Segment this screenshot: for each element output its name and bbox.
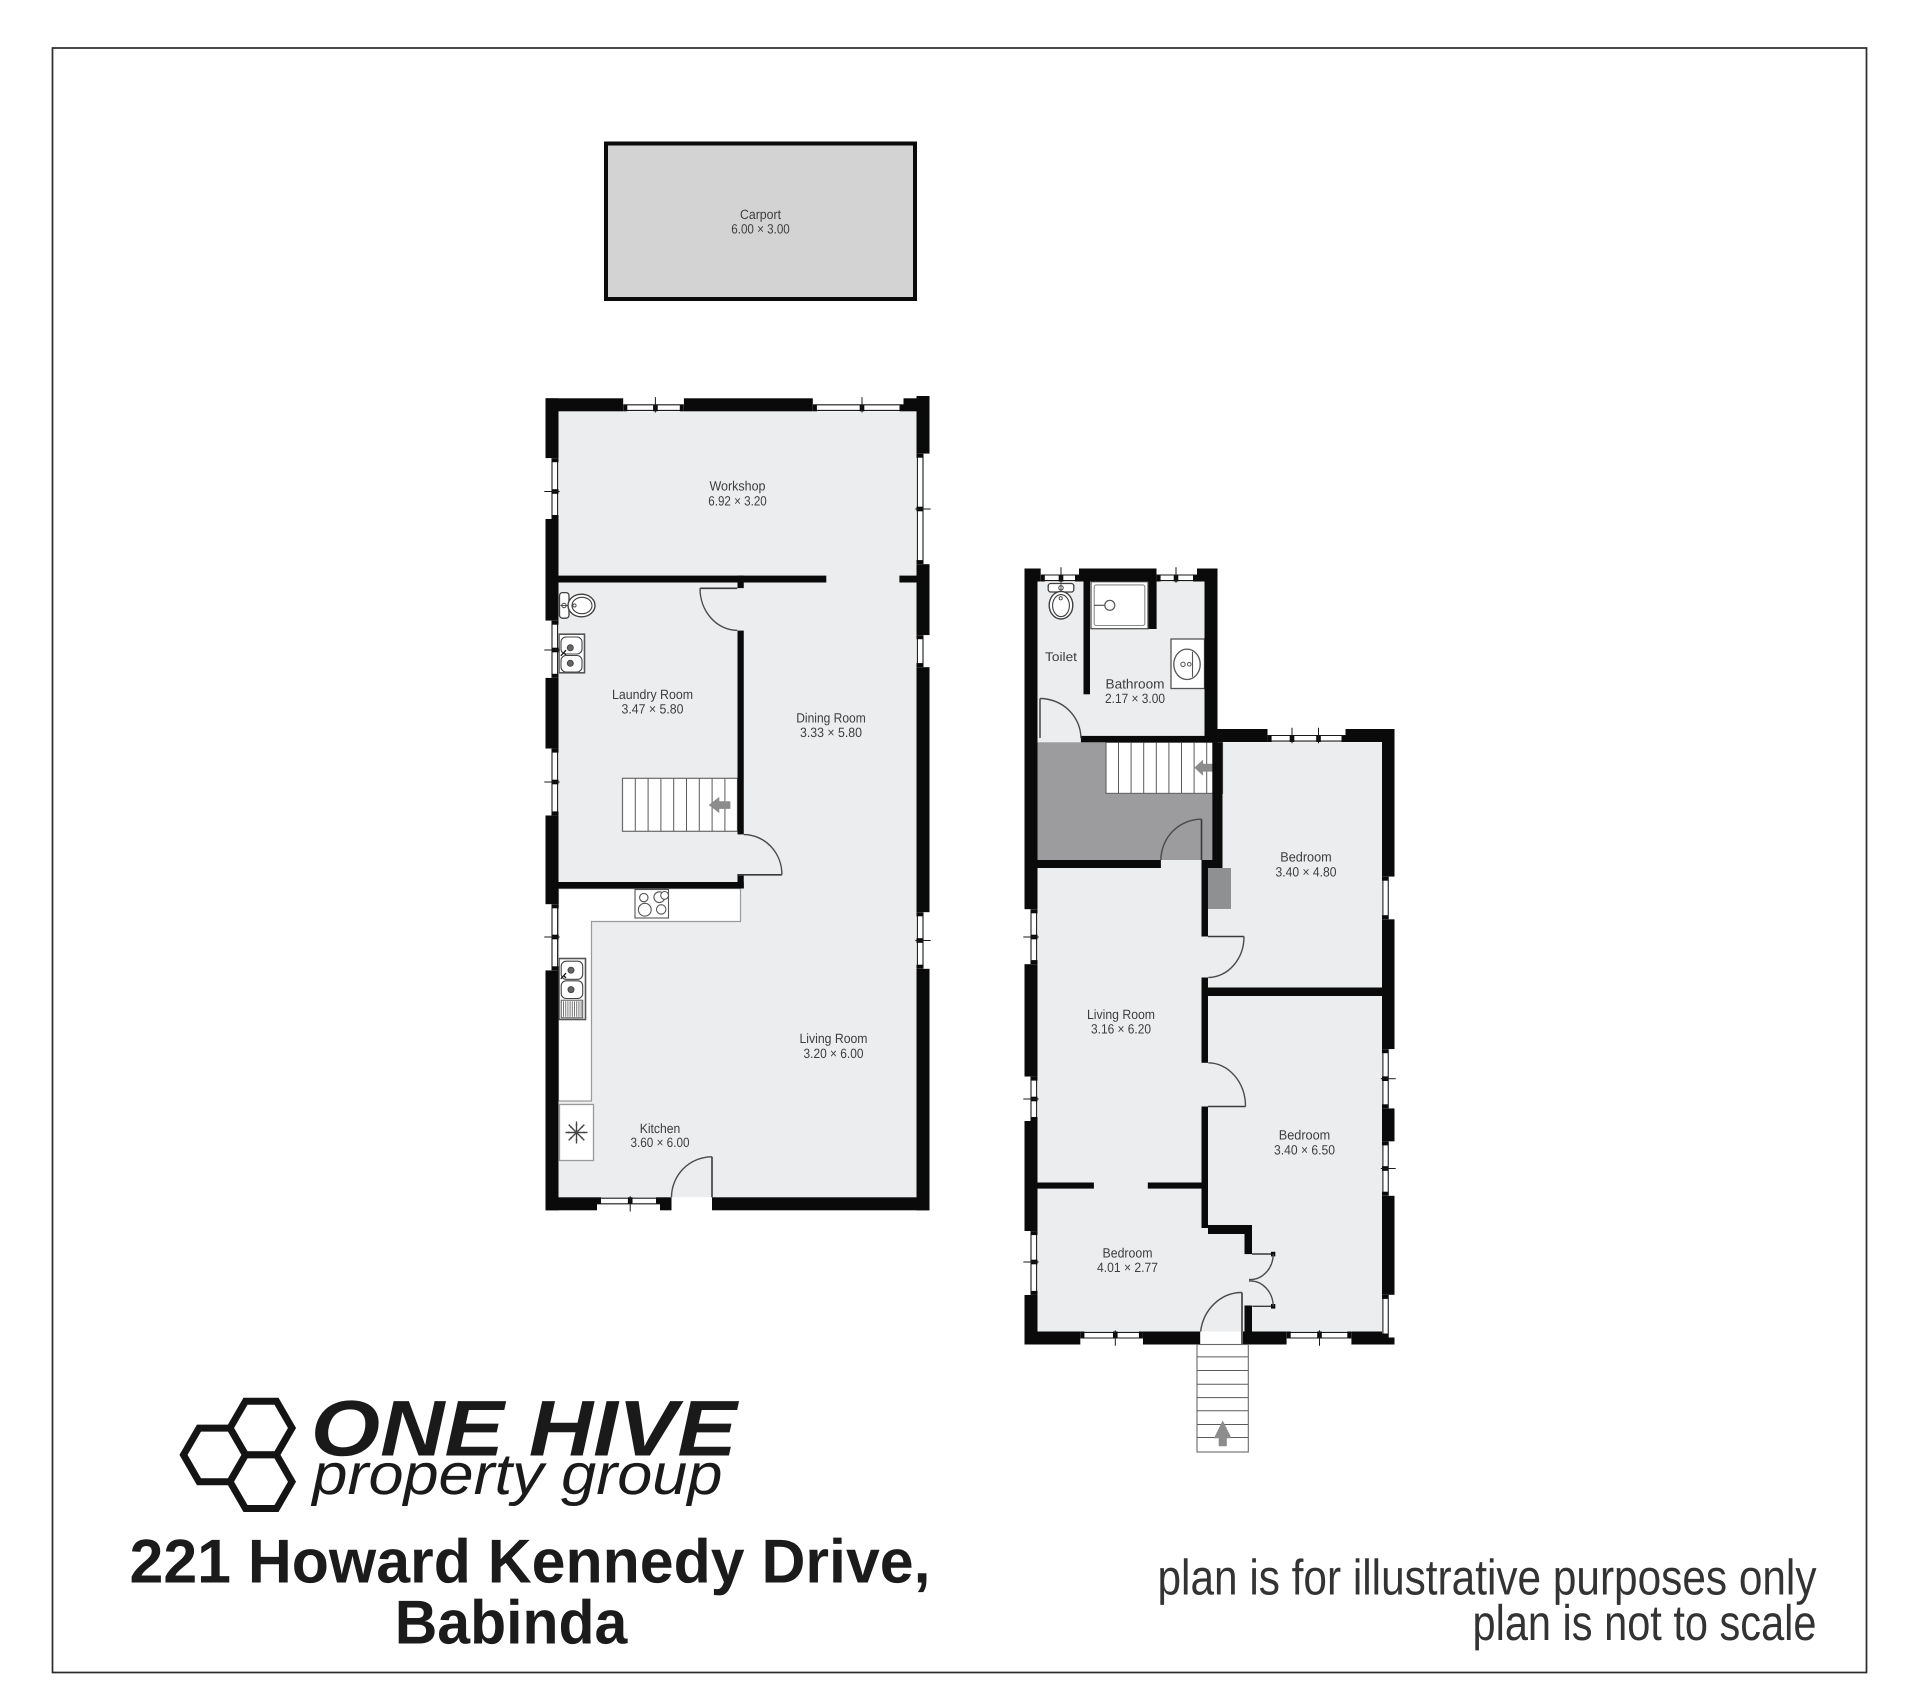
svg-text:6.00 × 3.00: 6.00 × 3.00: [731, 221, 790, 236]
svg-text:Living Room: Living Room: [800, 1031, 868, 1046]
svg-text:4.01 × 2.77: 4.01 × 2.77: [1097, 1260, 1158, 1275]
svg-text:Dining Room: Dining Room: [796, 710, 866, 725]
svg-text:Toilet: Toilet: [1045, 650, 1078, 664]
svg-text:3.40 × 4.80: 3.40 × 4.80: [1276, 865, 1337, 880]
svg-text:3.20 × 6.00: 3.20 × 6.00: [804, 1046, 864, 1061]
svg-text:Bathroom: Bathroom: [1106, 677, 1165, 692]
svg-text:221 Howard Kennedy Drive,: 221 Howard Kennedy Drive,: [130, 1528, 931, 1597]
svg-text:3.40 × 6.50: 3.40 × 6.50: [1274, 1143, 1335, 1158]
svg-text:plan is not to scale: plan is not to scale: [1473, 1595, 1817, 1651]
svg-text:Bedroom: Bedroom: [1279, 1128, 1331, 1143]
svg-text:6.92 × 3.20: 6.92 × 3.20: [708, 494, 767, 509]
svg-text:3.33 × 5.80: 3.33 × 5.80: [800, 725, 862, 740]
svg-text:property group: property group: [310, 1442, 722, 1507]
svg-text:3.16 × 6.20: 3.16 × 6.20: [1091, 1022, 1151, 1037]
svg-text:3.60 × 6.00: 3.60 × 6.00: [631, 1135, 690, 1150]
svg-text:Carport: Carport: [740, 207, 781, 222]
svg-text:Bedroom: Bedroom: [1280, 850, 1332, 865]
svg-text:Kitchen: Kitchen: [640, 1121, 681, 1136]
svg-text:2.17 × 3.00: 2.17 × 3.00: [1105, 691, 1165, 706]
svg-text:Laundry Room: Laundry Room: [612, 687, 693, 702]
svg-text:Babinda: Babinda: [395, 1589, 628, 1658]
svg-text:3.47 × 5.80: 3.47 × 5.80: [622, 702, 684, 717]
svg-text:Bedroom: Bedroom: [1103, 1246, 1153, 1261]
svg-text:Living Room: Living Room: [1087, 1007, 1155, 1022]
svg-text:Workshop: Workshop: [710, 479, 766, 494]
